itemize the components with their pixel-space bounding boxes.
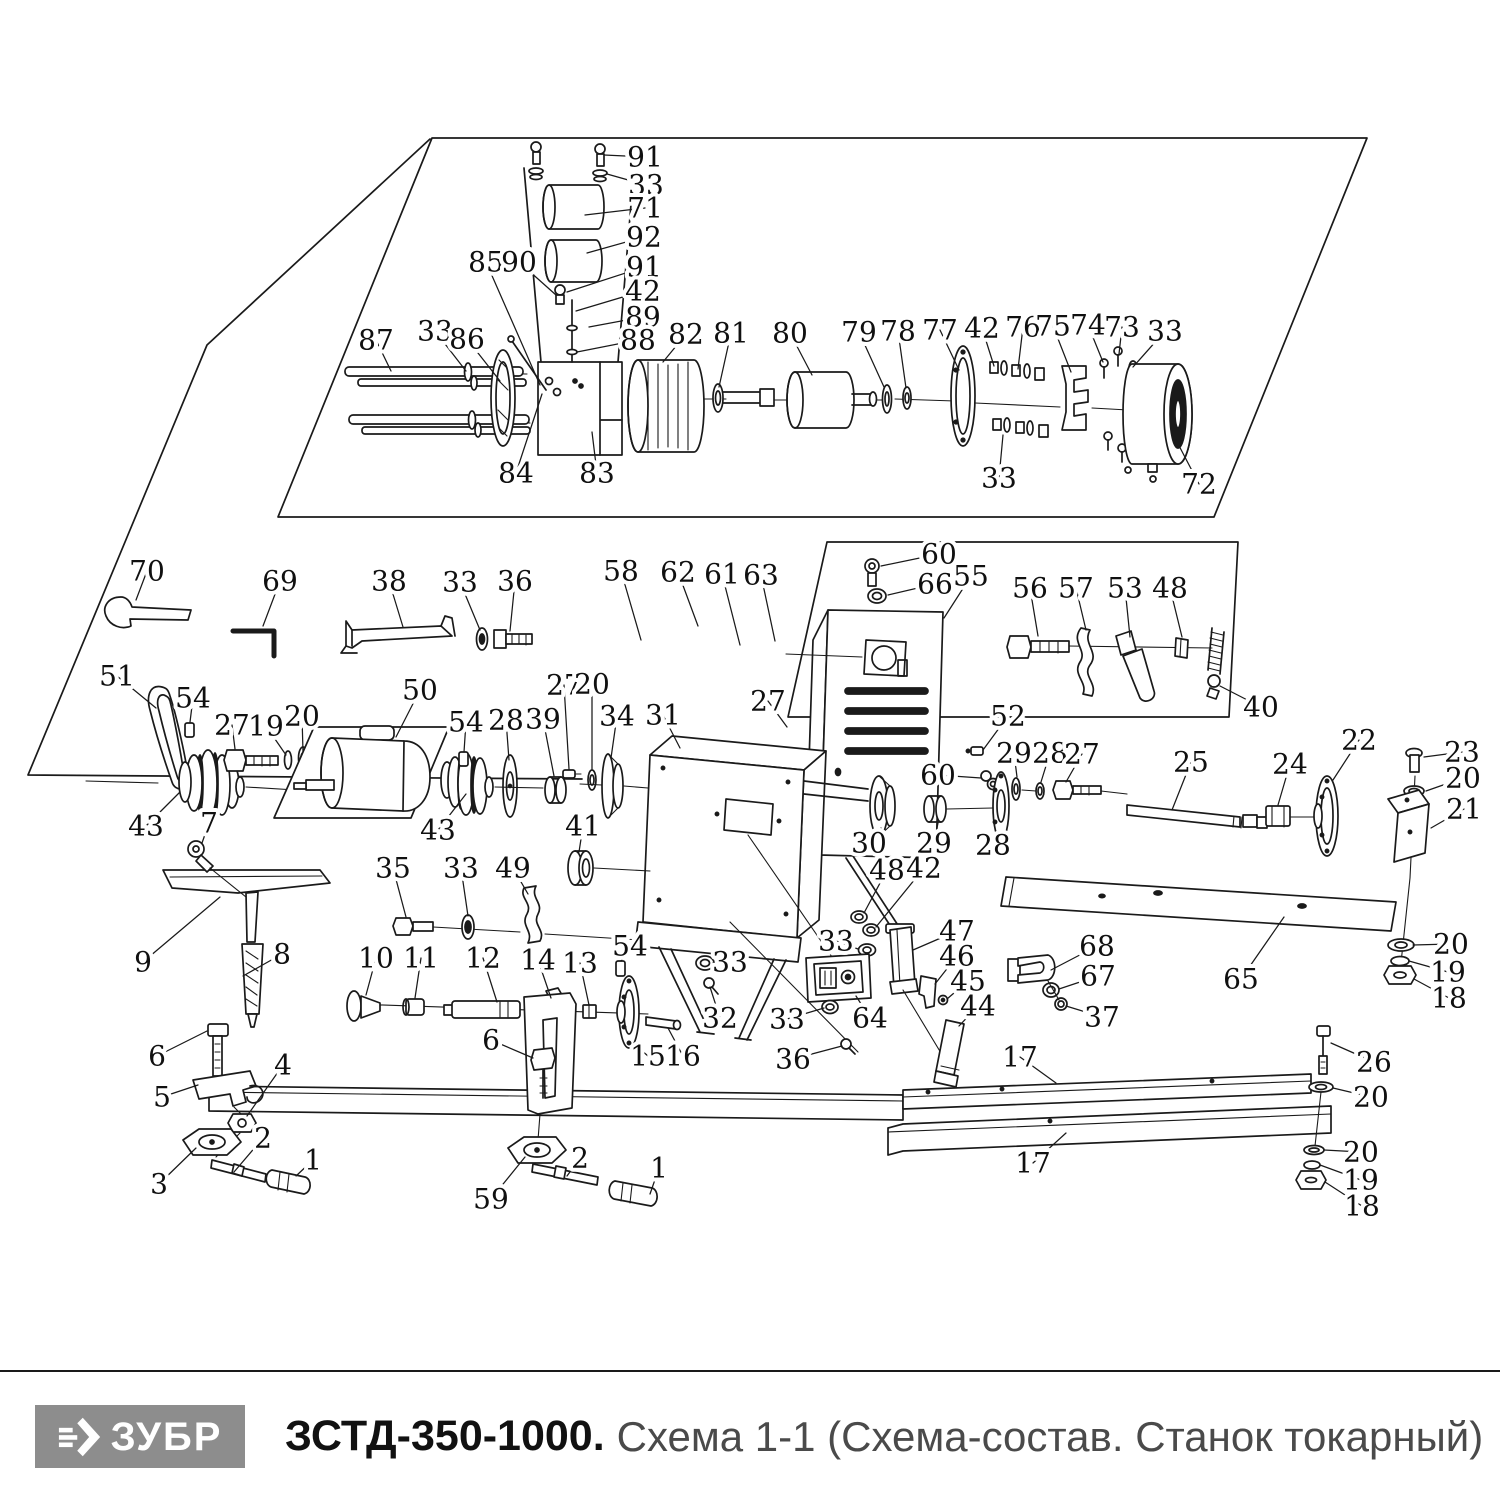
part-label-19: 19 xyxy=(248,710,284,743)
part-label-22: 22 xyxy=(1341,724,1377,757)
part-label-80: 80 xyxy=(772,317,808,350)
footer-title: ЗСТД-350-1000. Схема 1-1 (Схема-состав. … xyxy=(285,1405,1483,1468)
leader-line-9 xyxy=(143,897,220,962)
part-label-18: 18 xyxy=(1431,982,1467,1015)
part-label-15: 15 xyxy=(630,1040,666,1073)
part-label-11: 11 xyxy=(403,942,439,975)
part-label-54: 54 xyxy=(448,706,484,739)
part-label-25: 25 xyxy=(1173,746,1209,779)
part-label-67: 67 xyxy=(1080,960,1116,993)
part-label-33: 33 xyxy=(443,852,479,885)
part-label-78: 78 xyxy=(880,315,916,348)
part-label-55: 55 xyxy=(953,560,989,593)
part-label-74: 74 xyxy=(1070,309,1106,342)
toolrest-group xyxy=(163,841,330,1194)
schematic-page: 9133719291428988859087338682818079787742… xyxy=(0,0,1500,1500)
part-label-42: 42 xyxy=(906,852,942,885)
part-label-87: 87 xyxy=(358,324,394,357)
part-label-2: 2 xyxy=(571,1142,589,1175)
part-label-14: 14 xyxy=(520,944,556,977)
part-label-27: 27 xyxy=(1064,738,1100,771)
part-label-38: 38 xyxy=(371,565,407,598)
footer-subtitle: Схема 1-1 (Схема-состав. Станок токарный… xyxy=(617,1413,1484,1461)
part-label-61: 61 xyxy=(704,558,740,591)
part-label-58: 58 xyxy=(603,555,639,588)
part-label-57: 57 xyxy=(1058,572,1094,605)
part-label-9: 9 xyxy=(134,946,152,979)
part-label-88: 88 xyxy=(620,324,656,357)
motor-drive-row xyxy=(86,687,648,818)
part-label-60: 60 xyxy=(921,538,957,571)
part-label-33: 33 xyxy=(1147,315,1183,348)
part-label-59: 59 xyxy=(473,1183,509,1216)
part-label-85: 85 xyxy=(468,246,504,279)
part-label-27: 27 xyxy=(750,685,786,718)
part-label-42: 42 xyxy=(964,312,1000,345)
part-label-33: 33 xyxy=(417,315,453,348)
part-label-5: 5 xyxy=(153,1081,171,1114)
part-label-26: 26 xyxy=(1356,1046,1392,1079)
part-label-6: 6 xyxy=(482,1024,500,1057)
part-number-labels: 9133719291428988859087338682818079787742… xyxy=(99,141,1482,1223)
part-label-13: 13 xyxy=(562,947,598,980)
part-label-16: 16 xyxy=(665,1040,701,1073)
part-label-31: 31 xyxy=(645,699,681,732)
exploded-view-diagram: 9133719291428988859087338682818079787742… xyxy=(0,0,1500,1500)
zubr-logo: ЗУБР xyxy=(35,1405,245,1468)
part-label-69: 69 xyxy=(262,565,298,598)
part-label-49: 49 xyxy=(495,852,531,885)
part-label-27: 27 xyxy=(214,709,250,742)
part-label-2: 2 xyxy=(254,1122,272,1155)
part-label-53: 53 xyxy=(1107,572,1143,605)
part-label-63: 63 xyxy=(743,559,779,592)
zubr-logo-icon xyxy=(58,1415,102,1459)
part-label-36: 36 xyxy=(497,565,533,598)
base-plate-group xyxy=(1001,877,1416,984)
part-label-33: 33 xyxy=(769,1003,805,1036)
part-label-72: 72 xyxy=(1181,468,1217,501)
part-label-56: 56 xyxy=(1012,572,1048,605)
part-label-37: 37 xyxy=(1084,1001,1120,1034)
part-label-68: 68 xyxy=(1079,930,1115,963)
part-label-65: 65 xyxy=(1223,963,1259,996)
part-label-7: 7 xyxy=(200,807,218,840)
part-label-33: 33 xyxy=(981,462,1017,495)
part-label-86: 86 xyxy=(449,323,485,356)
part-label-8: 8 xyxy=(273,938,291,971)
part-label-36: 36 xyxy=(775,1043,811,1076)
part-label-29: 29 xyxy=(996,737,1032,770)
part-label-84: 84 xyxy=(498,457,534,490)
footer-divider xyxy=(0,1370,1500,1372)
part-label-81: 81 xyxy=(713,317,749,350)
part-label-33: 33 xyxy=(818,925,854,958)
part-label-52: 52 xyxy=(990,700,1026,733)
part-label-1: 1 xyxy=(650,1152,668,1185)
part-label-51: 51 xyxy=(99,660,135,693)
part-label-20: 20 xyxy=(1445,762,1481,795)
part-label-20: 20 xyxy=(1353,1081,1389,1114)
part-label-79: 79 xyxy=(841,316,877,349)
part-label-1: 1 xyxy=(304,1144,322,1177)
part-label-75: 75 xyxy=(1035,310,1071,343)
part-label-18: 18 xyxy=(1344,1190,1380,1223)
footer-model: ЗСТД-350-1000. xyxy=(285,1412,605,1461)
part-label-33: 33 xyxy=(442,566,478,599)
tailstock-group xyxy=(347,961,681,1206)
part-label-35: 35 xyxy=(375,852,411,885)
part-label-17: 17 xyxy=(1002,1041,1038,1074)
part-label-60: 60 xyxy=(920,759,956,792)
part-label-28: 28 xyxy=(975,829,1011,862)
part-label-70: 70 xyxy=(129,555,165,588)
tools-row xyxy=(105,597,532,656)
part-label-66: 66 xyxy=(917,568,953,601)
part-label-50: 50 xyxy=(402,674,438,707)
part-label-6: 6 xyxy=(148,1040,166,1073)
part-label-54: 54 xyxy=(175,682,211,715)
part-label-21: 21 xyxy=(1446,793,1482,826)
part-label-62: 62 xyxy=(660,556,696,589)
part-label-43: 43 xyxy=(128,810,164,843)
part-label-73: 73 xyxy=(1104,311,1140,344)
part-label-48: 48 xyxy=(869,854,905,887)
part-label-34: 34 xyxy=(599,700,635,733)
part-label-40: 40 xyxy=(1243,691,1279,724)
part-label-92: 92 xyxy=(626,221,662,254)
part-label-32: 32 xyxy=(702,1002,738,1035)
part-label-43: 43 xyxy=(420,814,456,847)
part-label-4: 4 xyxy=(274,1049,292,1082)
part-label-77: 77 xyxy=(922,314,958,347)
part-label-64: 64 xyxy=(852,1002,888,1035)
tensioner-bolt-row xyxy=(1007,628,1224,701)
part-label-17: 17 xyxy=(1015,1147,1051,1180)
part-label-41: 41 xyxy=(565,810,601,843)
part-label-90: 90 xyxy=(501,246,537,279)
part-label-82: 82 xyxy=(668,318,704,351)
part-label-28: 28 xyxy=(488,704,524,737)
part-label-54: 54 xyxy=(612,930,648,963)
zubr-logo-text: ЗУБР xyxy=(111,1417,223,1457)
part-label-48: 48 xyxy=(1152,572,1188,605)
part-label-12: 12 xyxy=(465,942,501,975)
part-label-20: 20 xyxy=(284,700,320,733)
part-label-28: 28 xyxy=(1032,737,1068,770)
part-label-3: 3 xyxy=(150,1168,168,1201)
part-label-44: 44 xyxy=(960,990,996,1023)
part-label-24: 24 xyxy=(1272,748,1308,781)
part-label-20: 20 xyxy=(574,668,610,701)
part-label-39: 39 xyxy=(525,703,561,736)
part-label-83: 83 xyxy=(579,457,615,490)
part-label-33: 33 xyxy=(712,946,748,979)
part-label-10: 10 xyxy=(358,942,394,975)
